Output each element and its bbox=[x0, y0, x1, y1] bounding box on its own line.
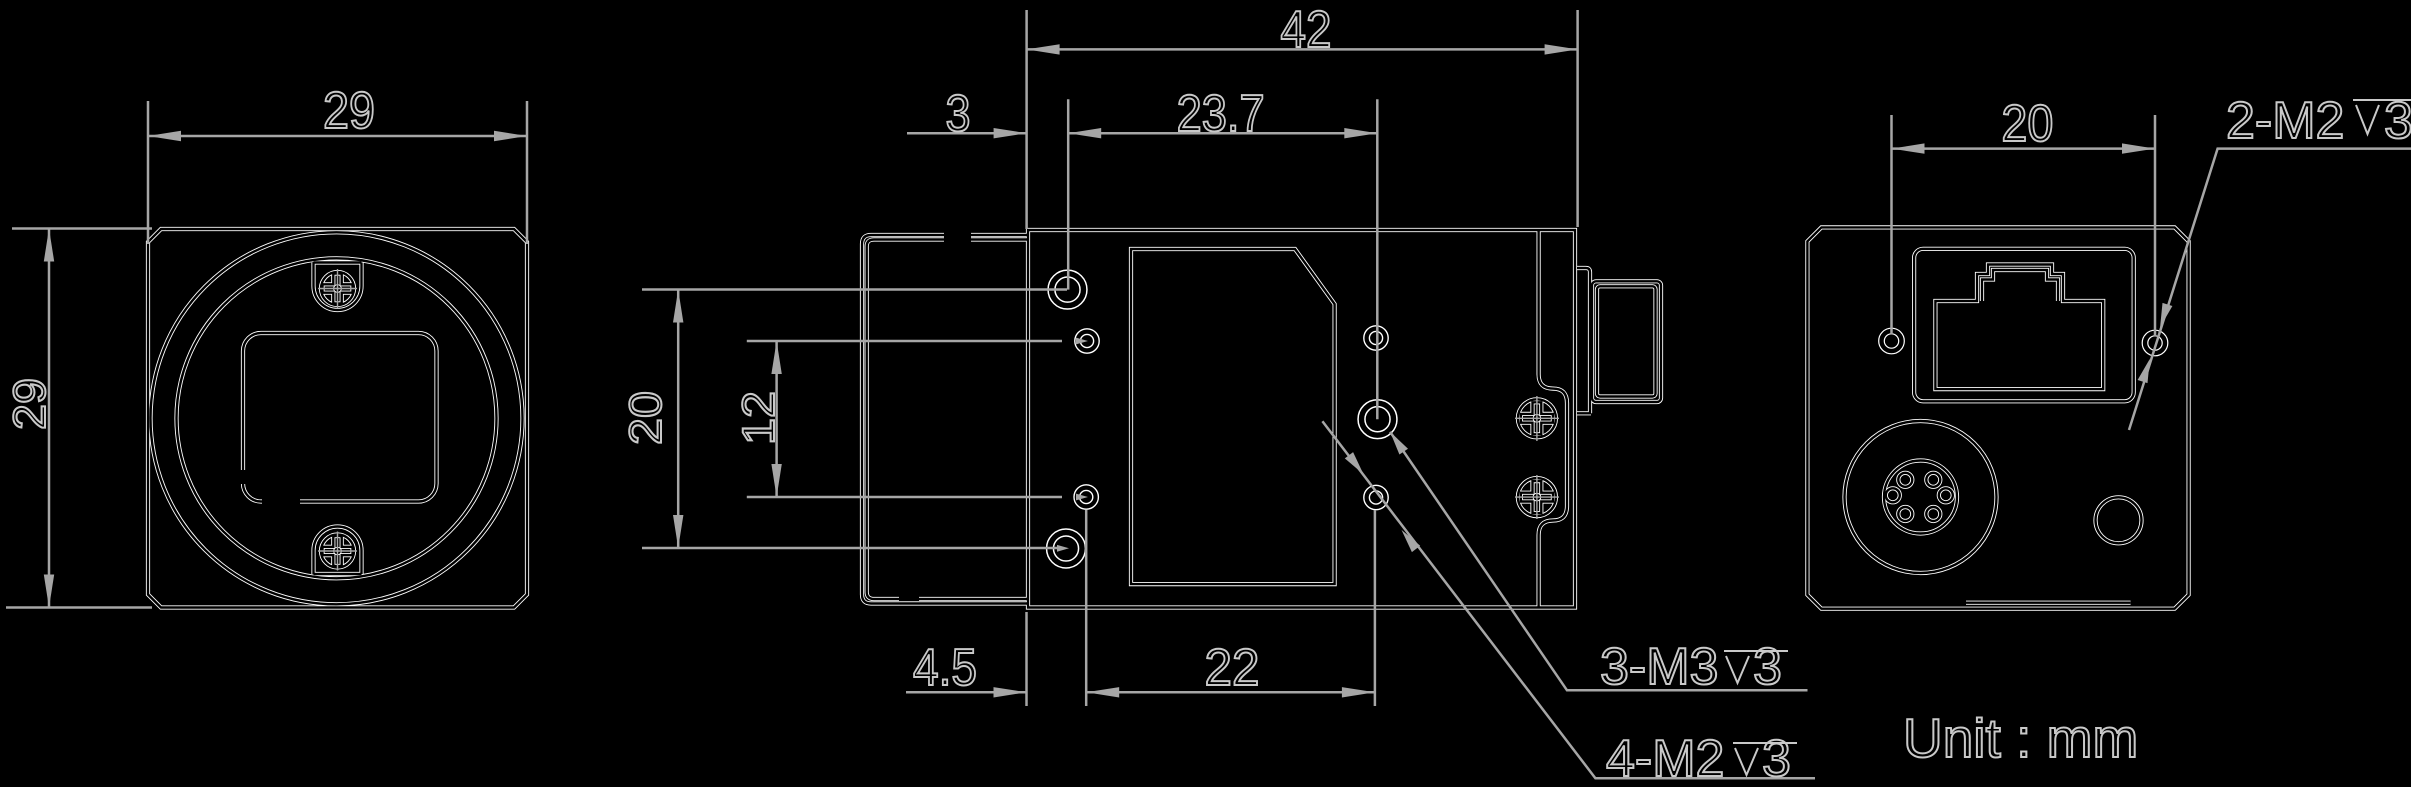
svg-text:29: 29 bbox=[323, 82, 375, 140]
svg-text:42: 42 bbox=[1281, 1, 1332, 59]
svg-text:2-M2: 2-M2 bbox=[2226, 92, 2344, 150]
svg-text:3-M3: 3-M3 bbox=[1600, 638, 1718, 696]
svg-text:23.7: 23.7 bbox=[1177, 85, 1265, 143]
svg-text:20: 20 bbox=[620, 391, 671, 445]
svg-text:Unit : mm: Unit : mm bbox=[1903, 707, 2138, 769]
svg-text:22: 22 bbox=[1205, 639, 1260, 697]
svg-text:3: 3 bbox=[1753, 638, 1782, 696]
svg-text:29: 29 bbox=[4, 378, 55, 430]
svg-text:4-M2: 4-M2 bbox=[1606, 730, 1724, 787]
svg-text:12: 12 bbox=[733, 391, 784, 445]
svg-text:3: 3 bbox=[946, 85, 971, 143]
svg-text:4.5: 4.5 bbox=[913, 639, 977, 697]
svg-text:3: 3 bbox=[1762, 730, 1791, 787]
svg-text:20: 20 bbox=[2001, 95, 2053, 153]
